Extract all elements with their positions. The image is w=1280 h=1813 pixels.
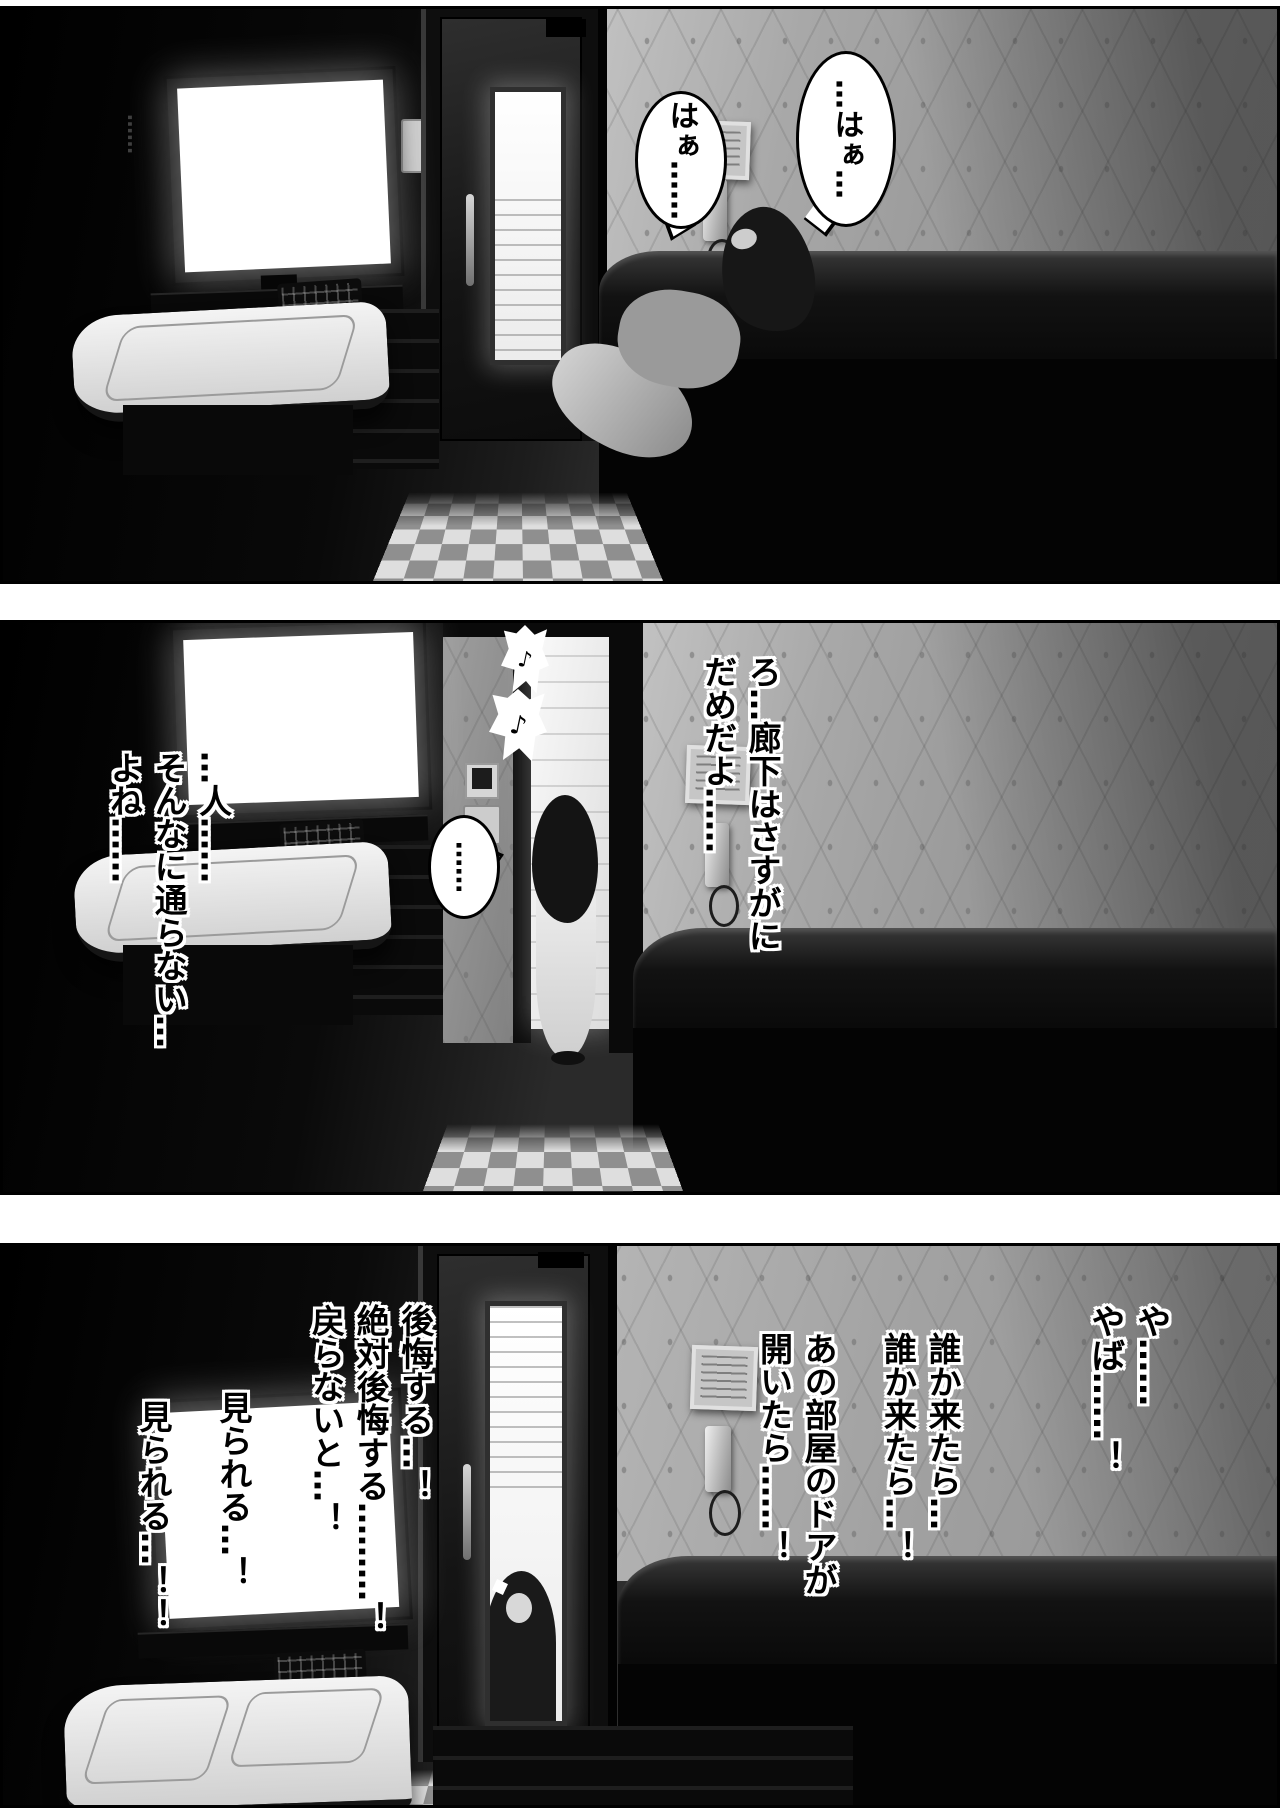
dialogue-right: 誰か来たら… 誰か来たら…！ — [875, 1332, 964, 1563]
window-blinds — [490, 1306, 562, 1493]
door-handle — [466, 194, 474, 286]
standing-figure-hair — [532, 795, 598, 923]
dialogue-left: …人…… そんなに通らない… よね…… — [101, 751, 235, 1048]
media-cabinet — [433, 1726, 853, 1805]
door-closer — [538, 1252, 584, 1268]
couch-seat — [633, 1028, 1277, 1192]
window-blinds — [495, 199, 561, 360]
speech-bubble-right-text: …はぁ… — [830, 79, 863, 199]
dialogue-far-left-2: 見られる…！！ — [129, 1400, 177, 1631]
panel-2: ♪ ♪ …… ろ…廊下はさすがに だめだよ…… — [0, 620, 1280, 1195]
speech-bubble-right: …はぁ… — [796, 51, 896, 227]
dialogue-mid: あの部屋のドアが 開いたら……！ — [751, 1332, 840, 1596]
ambient-ellipsis: …… — [123, 114, 147, 154]
plaque-text-lines — [700, 1355, 748, 1401]
dialogue-right: ろ…廊下はさすがに だめだよ…… — [695, 655, 784, 952]
table-inlay — [101, 314, 359, 402]
dialogue-line: よね…… — [101, 751, 146, 1048]
dialogue-line: や…… — [1127, 1304, 1173, 1474]
door-window — [490, 87, 566, 365]
wall-phone — [705, 1426, 731, 1492]
dialogue-left: 後悔する…！ 絶対後悔する………！ 戻らないと…！ — [303, 1304, 437, 1634]
dialogue-line: そんなに通らない… — [146, 751, 191, 1048]
speech-bubble-text: …… — [450, 841, 479, 893]
door-closer — [546, 19, 586, 37]
standing-figure-shoes — [551, 1051, 585, 1065]
tv-screen — [177, 80, 391, 273]
dialogue-far-left-1: 見られる…！ — [209, 1391, 257, 1589]
dialogue-line: ろ…廊下はさすがに — [740, 655, 785, 952]
dialogue-line: …人…… — [190, 751, 235, 1048]
speech-bubble-left: はぁ…… — [635, 91, 727, 229]
table — [63, 1675, 412, 1808]
dialogue-line: 絶対後悔する………！ — [348, 1304, 393, 1634]
panel-3: や…… やば……！ 誰か来たら… 誰か来たら…！ あの部屋のドアが 開いたら……… — [0, 1243, 1280, 1808]
dialogue-line: あの部屋のドアが — [796, 1332, 841, 1596]
door — [418, 1246, 617, 1762]
music-note-icon: ♪ — [516, 646, 535, 673]
door-handle — [463, 1464, 471, 1560]
panel-1: …… はぁ…… …はぁ… — [0, 6, 1280, 584]
table-base — [123, 405, 353, 475]
door-window — [485, 1301, 567, 1726]
intercom-panel — [465, 763, 499, 799]
speech-bubble: …… — [428, 815, 500, 919]
table-inlay — [81, 1695, 233, 1784]
dialogue-line: だめだよ…… — [695, 655, 740, 952]
dialogue-line: 後悔する…！ — [392, 1304, 437, 1634]
info-plaque — [690, 1345, 758, 1411]
floor-tiles — [373, 492, 663, 581]
dialogue-line: やば……！ — [1081, 1304, 1127, 1474]
dialogue-line: 開いたら……！ — [751, 1332, 796, 1596]
phone-cord — [709, 1490, 741, 1536]
couch-seat — [599, 359, 1277, 584]
dialogue-line: 戻らないと…！ — [303, 1304, 348, 1634]
dialogue-line: 誰か来たら…！ — [875, 1332, 920, 1563]
dialogue-far-right: や…… やば……！ — [1081, 1304, 1173, 1474]
floor-tiles — [423, 1124, 683, 1191]
speech-bubble-left-text: はぁ…… — [665, 100, 698, 220]
intercom-screen — [472, 768, 492, 789]
dialogue-line: 誰か来たら… — [920, 1332, 965, 1563]
music-note-icon: ♪ — [507, 710, 529, 743]
table-inlay — [227, 1688, 385, 1768]
tv — [164, 66, 405, 286]
peeking-figure-face — [506, 1593, 532, 1623]
manga-page: …… はぁ…… …はぁ… — [0, 0, 1280, 1813]
